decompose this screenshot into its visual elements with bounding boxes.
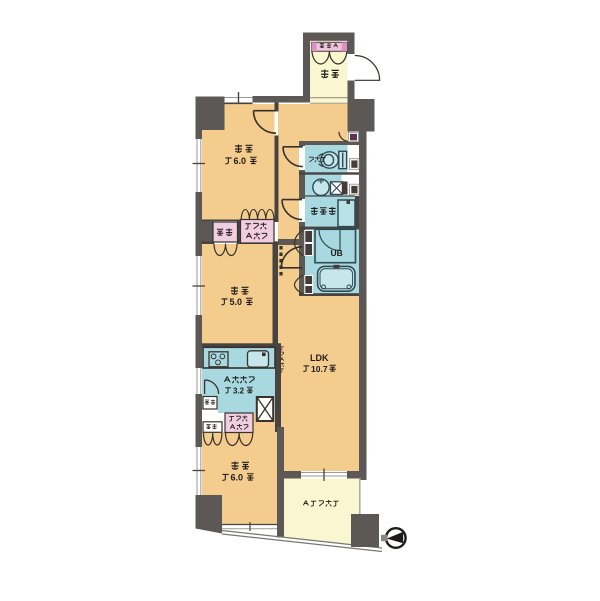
svg-text:5.0: 5.0 — [230, 297, 243, 307]
svg-text:UB: UB — [331, 248, 343, 258]
svg-text:6.0: 6.0 — [231, 473, 244, 483]
svg-text:6.0: 6.0 — [234, 156, 247, 166]
svg-text:3.2: 3.2 — [233, 387, 245, 396]
svg-text:10.7: 10.7 — [311, 364, 328, 374]
svg-text:LDK: LDK — [310, 353, 329, 363]
